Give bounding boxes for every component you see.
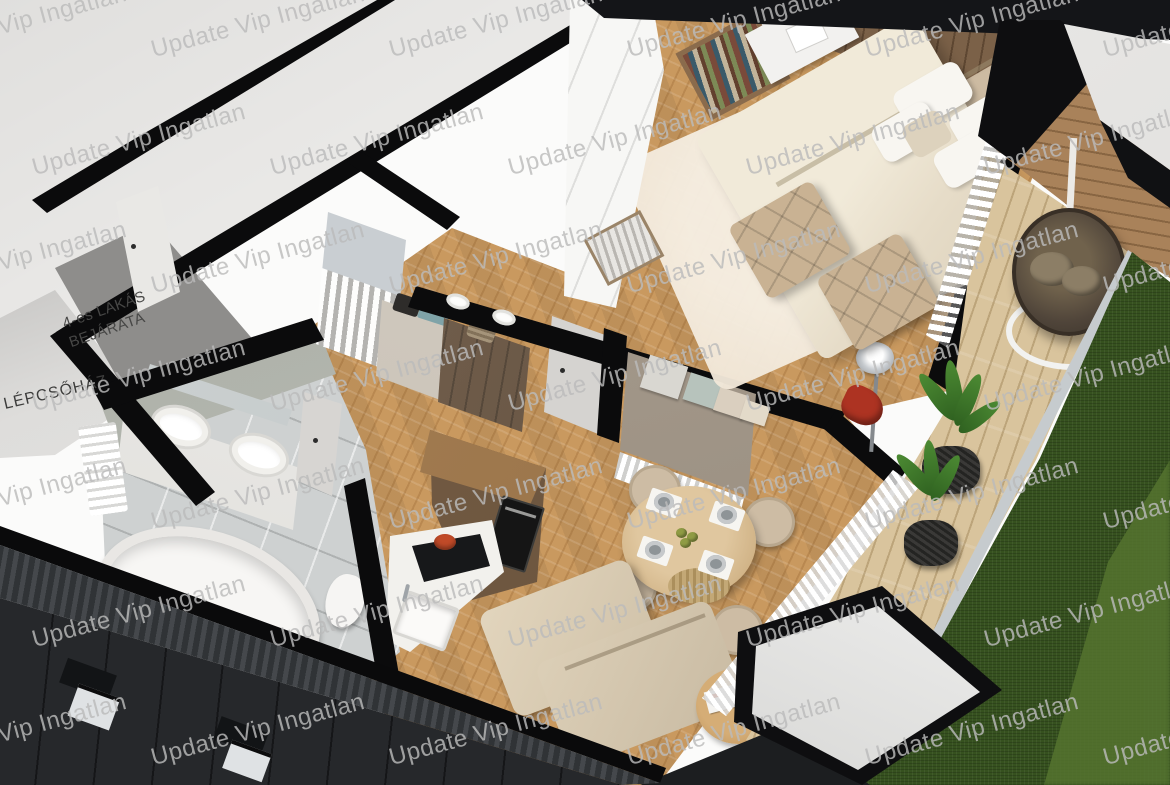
- watermark-text: Update Vip Ingatlan: [981, 334, 1170, 418]
- watermark-text: Update Vip Ingatlan: [148, 688, 368, 772]
- watermark-text: Update Vip Ingatlan: [148, 216, 368, 300]
- watermark-text: Update Vip Ingatlan: [1100, 452, 1170, 536]
- watermark-text: Update Vip Ingatlan: [624, 452, 844, 536]
- watermark-text: Update Vip Ingatlan: [624, 688, 844, 772]
- watermark-text: Update Vip Ingatlan: [981, 570, 1170, 654]
- watermark-text: Update Vip Ingatlan: [386, 452, 606, 536]
- watermark-text: Update Vip Ingatlan: [267, 570, 487, 654]
- watermark-text: Update Vip Ingatlan: [743, 334, 963, 418]
- watermark-text: Update Vip Ingatlan: [0, 216, 130, 300]
- watermark-text: Update Vip Ingatlan: [862, 452, 1082, 536]
- watermark-text: Update Vip Ingatlan: [1100, 216, 1170, 300]
- watermark-text: Update Vip Ingatlan: [267, 334, 487, 418]
- watermark-text: Update Vip Ingatlan: [29, 570, 249, 654]
- watermark-text: Update Vip Ingatlan: [505, 570, 725, 654]
- watermark-text: Update Vip Ingatlan: [0, 452, 130, 536]
- watermark-text: Update Vip Ingatlan: [386, 216, 606, 300]
- watermark-text: Update Vip Ingatlan: [0, 688, 130, 772]
- watermark-text: Update Vip Ingatlan: [505, 98, 725, 182]
- watermark-text: Update Vip Ingatlan: [386, 688, 606, 772]
- watermark-text: Update Vip Ingatlan: [386, 0, 606, 64]
- watermark-text: Update Vip Ingatlan: [624, 0, 844, 64]
- watermark-text: Update Vip Ingatlan: [743, 570, 963, 654]
- watermark-text: Update Vip Ingatlan: [862, 688, 1082, 772]
- watermark-text: Update Vip Ingatlan: [1100, 688, 1170, 772]
- floorplan-3d-render: 4-es LAKÁS BEJÁRATA LÉPCSŐHÁZ Update Vip…: [0, 0, 1170, 785]
- watermark-text: Update Vip Ingatlan: [148, 452, 368, 536]
- watermark-text: Update Vip Ingatlan: [743, 98, 963, 182]
- watermark-text: Update Vip Ingatlan: [29, 98, 249, 182]
- watermark-text: Update Vip Ingatlan: [29, 334, 249, 418]
- watermark-text: Update Vip Ingatlan: [148, 0, 368, 64]
- watermark-text: Update Vip Ingatlan: [862, 216, 1082, 300]
- watermark-text: Update Vip Ingatlan: [505, 334, 725, 418]
- watermark-text: Update Vip Ingatlan: [0, 0, 130, 64]
- watermark-text: Update Vip Ingatlan: [862, 0, 1082, 64]
- watermark-text: Update Vip Ingatlan: [981, 98, 1170, 182]
- watermark-text: Update Vip Ingatlan: [1100, 0, 1170, 64]
- watermark-text: Update Vip Ingatlan: [267, 98, 487, 182]
- watermark-text: Update Vip Ingatlan: [624, 216, 844, 300]
- watermark-layer: Update Vip IngatlanUpdate Vip IngatlanUp…: [0, 0, 1170, 785]
